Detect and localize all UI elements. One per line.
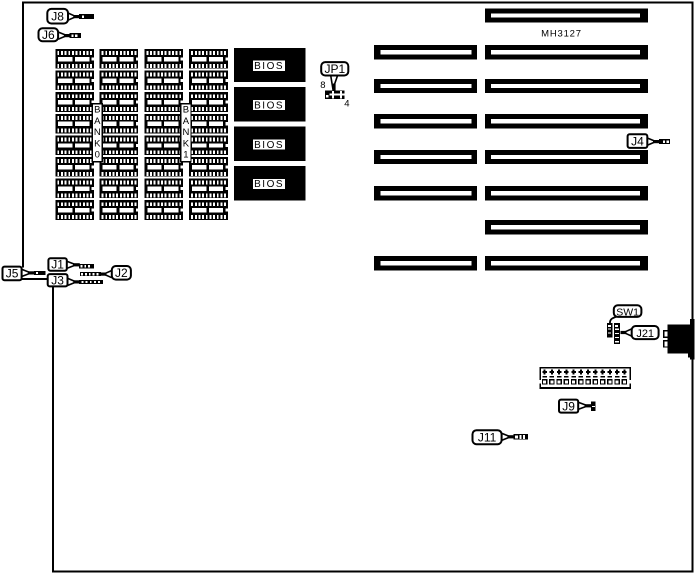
- svg-text:J3: J3: [51, 273, 64, 287]
- svg-text:B: B: [94, 105, 100, 116]
- svg-text:B: B: [183, 105, 189, 116]
- svg-text:J2: J2: [115, 266, 128, 280]
- svg-text:JP1: JP1: [324, 62, 345, 76]
- svg-text:K: K: [183, 138, 190, 149]
- svg-text:4: 4: [344, 99, 349, 110]
- svg-text:N: N: [94, 127, 101, 138]
- svg-text:K: K: [94, 138, 101, 149]
- svg-text:J1: J1: [51, 258, 64, 272]
- svg-text:1: 1: [183, 150, 188, 161]
- svg-text:8: 8: [320, 80, 325, 91]
- svg-text:J21: J21: [636, 328, 654, 340]
- svg-text:SW1: SW1: [616, 306, 639, 318]
- svg-text:J11: J11: [478, 430, 497, 444]
- svg-text:0: 0: [95, 150, 100, 161]
- svg-text:J5: J5: [6, 267, 19, 281]
- svg-text:MH3127: MH3127: [541, 29, 582, 40]
- svg-text:J8: J8: [51, 9, 64, 23]
- svg-text:BIOS: BIOS: [254, 140, 284, 151]
- svg-text:A: A: [183, 116, 190, 127]
- svg-text:A: A: [94, 116, 101, 127]
- svg-text:BIOS: BIOS: [254, 179, 284, 190]
- svg-text:N: N: [182, 127, 189, 138]
- svg-text:BIOS: BIOS: [254, 100, 284, 111]
- svg-text:J9: J9: [562, 399, 575, 413]
- svg-text:BIOS: BIOS: [254, 61, 284, 72]
- svg-text:J6: J6: [42, 28, 55, 42]
- svg-text:J4: J4: [631, 134, 644, 148]
